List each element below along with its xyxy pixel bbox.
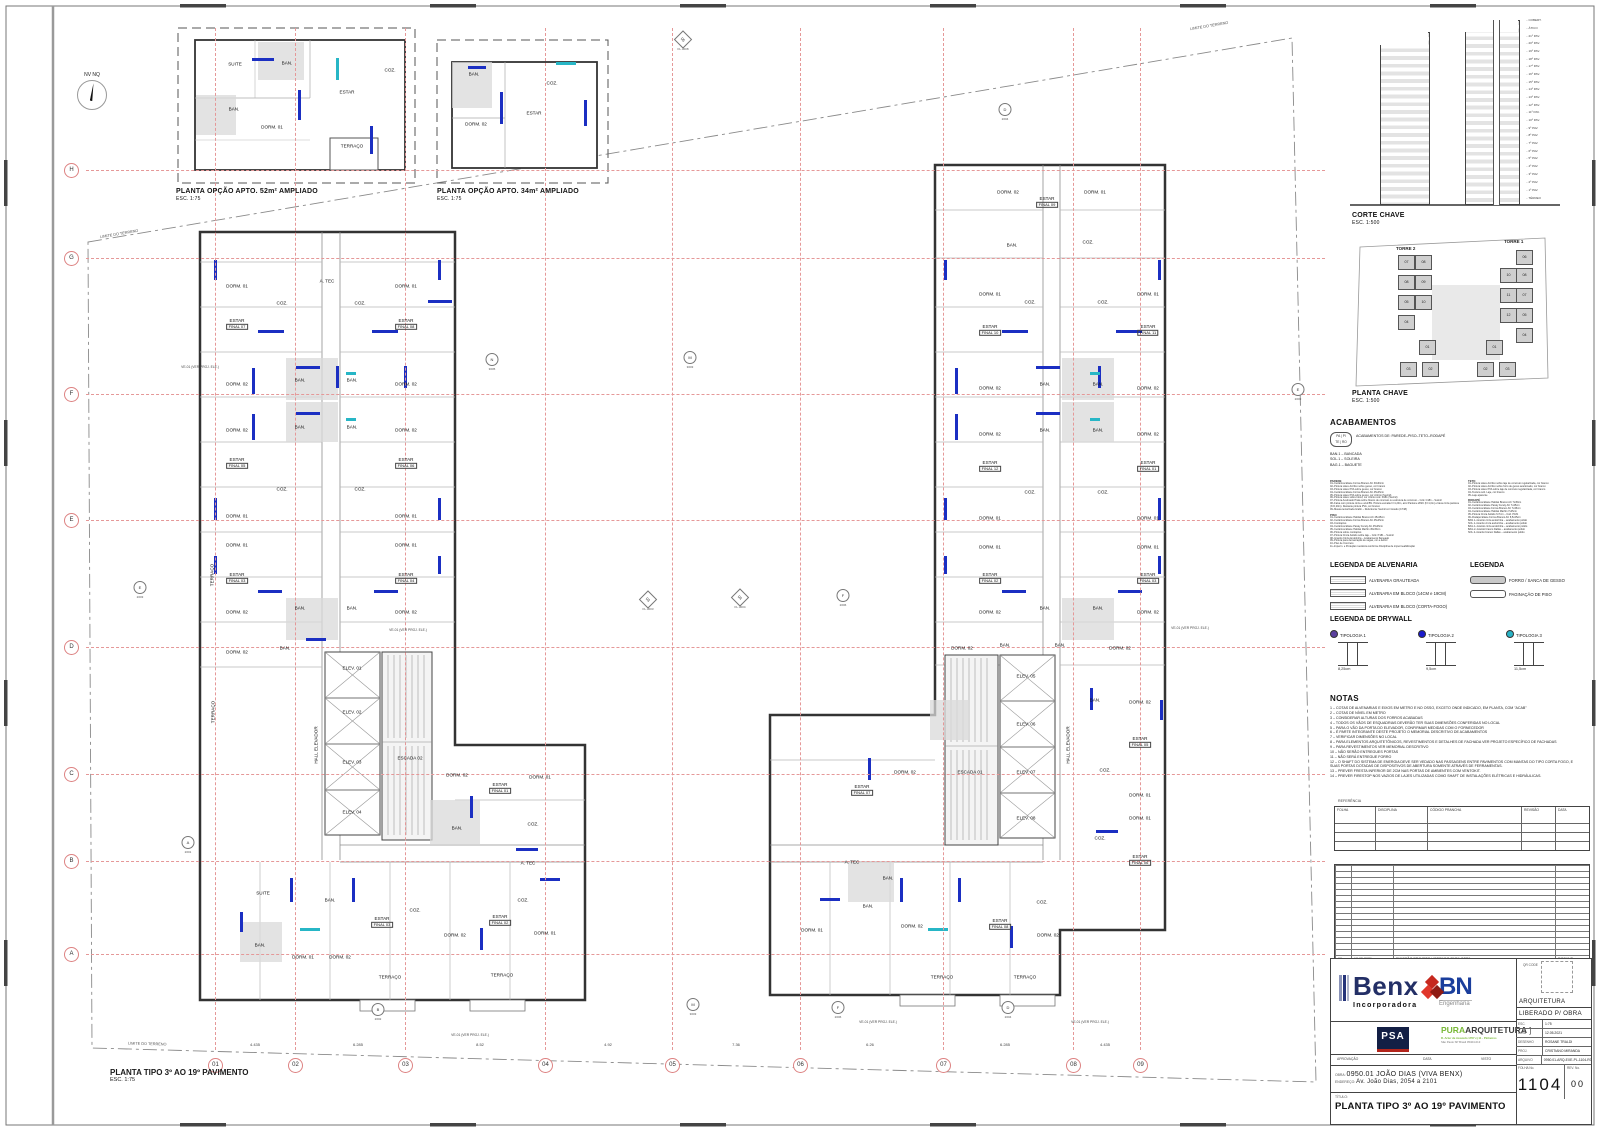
titulo-block: TÍTULO: PLANTA TIPO 3º AO 19º PAVIMENTO: [1335, 1095, 1513, 1112]
ve-annotation: VE-01 (VER PROJ. ELE.): [1171, 626, 1209, 630]
grid-line-v: [295, 28, 296, 1050]
drywall-accent: [1036, 412, 1060, 415]
room-label: DORM. 01: [395, 513, 417, 518]
room-final-tag: FINAL 01: [1137, 466, 1159, 473]
room-label: TERRAÇO: [379, 974, 401, 979]
key-plan-unit: 08: [1516, 268, 1533, 283]
marker-id: E: [134, 581, 147, 594]
room-label: DORM. 01: [395, 283, 417, 288]
room-label: HALL ELEVADOR: [1065, 726, 1070, 763]
room-label: BAN.: [469, 71, 480, 76]
room-label: ESTAR FINAL 06: [1129, 854, 1151, 866]
room-name: COZ.: [1098, 299, 1109, 304]
dimension-text: 4.435: [1100, 1042, 1110, 1047]
room-name: BAN.: [295, 605, 306, 610]
alvenaria-swatch: [1330, 576, 1366, 584]
room-name: COZ.: [1025, 489, 1036, 494]
room-label: ESTAR: [527, 110, 542, 115]
room-label: TERRAÇO: [491, 972, 513, 977]
section-marker: 06 FL.3008: [677, 33, 690, 51]
room-label: BAN.: [325, 897, 336, 902]
key-plan-unit: 10: [1415, 295, 1432, 310]
room-name: DORM. 02: [444, 932, 466, 937]
legenda-drywall-title: LEGENDA DE DRYWALL: [1330, 616, 1412, 623]
room-label: BAN.: [295, 605, 306, 610]
room-label: DORM. 02: [465, 121, 487, 126]
room-label: ELEV. 06: [1017, 721, 1036, 726]
key-plan-unit: 08: [1398, 275, 1415, 290]
drywall-typology: TIPOLOGIA 3 11,5cm: [1506, 630, 1576, 671]
alvenaria-swatch: [1330, 589, 1366, 597]
room-name: ESTAR: [993, 918, 1008, 923]
room-name: COZ.: [355, 300, 366, 305]
grid-bubble-col: 09: [1133, 1058, 1148, 1073]
room-name: COZ.: [277, 300, 288, 305]
marker-sheet-ref: 2004: [1002, 1015, 1015, 1019]
section-marker: N 3005: [486, 353, 499, 371]
info-row: PROJ. CRISTIANO MIRANDA: [1516, 1047, 1591, 1056]
room-label: ELEV. 04: [343, 809, 362, 814]
floor-level-label: 2º PAV.: [1526, 180, 1592, 184]
room-name: ESTAR: [399, 572, 414, 577]
caption-text: PLANTA TIPO 3º AO 19º PAVIMENTO: [110, 1068, 248, 1077]
typology-dimension: 8,25cm: [1338, 667, 1400, 671]
drywall-accent: [1096, 830, 1118, 833]
legend-swatch: [1470, 590, 1506, 598]
room-label: ESCADA 01: [957, 769, 982, 774]
drywall-accent: [346, 418, 356, 421]
key-plan-unit: 04: [1398, 315, 1415, 330]
room-label: DORM. 01: [292, 954, 314, 959]
referencia-empty-row: [1335, 815, 1589, 823]
room-label: DORM. 01: [1084, 189, 1106, 194]
room-name: BAN.: [295, 377, 306, 382]
teto-item: 05–Laje aparente: [1468, 495, 1588, 498]
shade-patch: [1062, 598, 1114, 640]
room-label: BAN.: [1007, 242, 1018, 247]
drywall-accent: [958, 878, 961, 902]
ve-annotation: VE-01 (VER PROJ. ELE.): [1071, 1020, 1109, 1024]
room-label: DORM. 02: [395, 609, 417, 614]
corte-top-cap: [1465, 20, 1518, 32]
revision-empty-row: [1335, 919, 1589, 925]
grid-bubble-row: G: [64, 251, 79, 266]
room-label: DORM. 02: [979, 431, 1001, 436]
drywall-accent: [336, 366, 339, 388]
room-label: TERRAÇO: [931, 974, 953, 979]
key-plan-unit: 11: [1500, 288, 1517, 303]
floor-level-label: ÁTICO: [1526, 26, 1592, 30]
acabamentos-symbol: PA | PI TE | RO: [1330, 432, 1352, 447]
drywall-accent: [300, 928, 320, 931]
room-name: BAN.: [1040, 381, 1051, 386]
room-label: BAN.: [347, 424, 358, 429]
caption-scale: ESC. 1:500: [1352, 220, 1405, 226]
room-label: TERRAÇO: [209, 564, 214, 586]
revision-empty-row: [1335, 901, 1589, 907]
room-name: A. TEC: [320, 278, 335, 283]
room-label: DORM. 01: [261, 124, 283, 129]
drywall-accent: [516, 848, 538, 851]
room-final-tag: FINAL 07: [851, 790, 873, 797]
floor-level-label: 18º PAV.: [1526, 57, 1592, 61]
revision-empty-row: [1335, 949, 1589, 955]
caption-scale: ESC. 1:75: [110, 1077, 248, 1083]
room-name: BAN.: [883, 875, 894, 880]
key-plan-unit: 12: [1500, 308, 1517, 323]
room-name: ESTAR: [1133, 736, 1148, 741]
room-label: ESTAR FINAL 05: [226, 457, 248, 469]
drywall-accent: [470, 796, 473, 818]
room-name: BAN.: [282, 60, 293, 65]
bn-logo: BN Engenharia: [1439, 975, 1472, 1007]
room-final-tag: FINAL 02: [489, 920, 511, 927]
typology-dot-icon: [1330, 630, 1338, 638]
room-name: TERRAÇO: [379, 974, 401, 979]
floor-level-label: 5º PAV.: [1526, 156, 1592, 160]
drywall-accent: [944, 498, 947, 520]
typology-dimension: 11,5cm: [1514, 667, 1576, 671]
floor-level-label: TÉRREO: [1526, 196, 1592, 200]
marker-id: F: [837, 589, 850, 602]
caption-text: PLANTA OPÇÃO APTO. 34m² AMPLIADO: [437, 188, 579, 195]
room-label: TERRAÇO: [210, 701, 215, 723]
room-label: COZ.: [355, 300, 366, 305]
section-marker: M 3003: [684, 351, 697, 369]
legend-label: PAGINAÇÃO DE PISO: [1509, 592, 1552, 597]
room-label: COZ.: [1025, 299, 1036, 304]
room-name: ESTAR: [1133, 854, 1148, 859]
room-name: DORM. 01: [292, 954, 314, 959]
grid-line-v: [672, 28, 673, 1050]
grid-bubble-row: C: [64, 767, 79, 782]
room-label: ESTAR FINAL 08: [989, 918, 1011, 930]
room-label: COZ.: [518, 897, 529, 902]
legend-label: ALVENARIA GRAUTEADA: [1369, 578, 1419, 583]
qr-code-label: QR CODE: [1523, 963, 1538, 967]
room-label: DORM. 01: [979, 544, 1001, 549]
room-name: DORM. 01: [979, 515, 1001, 520]
compass-label: NV NQ: [75, 72, 109, 78]
room-name: DORM. 02: [1137, 385, 1159, 390]
key-plan-unit: 02: [1422, 362, 1439, 377]
room-label: BAN.: [1040, 427, 1051, 432]
room-label: DORM. 02: [395, 427, 417, 432]
room-label: DORM. 01: [529, 774, 551, 779]
room-name: ESCADA 01: [957, 769, 982, 774]
key-plan-unit: 02: [1477, 362, 1494, 377]
room-name: TERRAÇO: [341, 143, 363, 148]
room-label: BAN.: [1093, 381, 1104, 386]
room-final-tag: FINAL 08: [395, 324, 417, 331]
ve-annotation: VE-01 (VER PROJ. ELE.): [451, 1033, 489, 1037]
drywall-accent: [1118, 590, 1142, 593]
drywall-accent: [372, 330, 398, 333]
drywall-section-icon: [1338, 642, 1368, 666]
revision-empty-row: [1335, 913, 1589, 919]
room-name: DORM. 01: [261, 124, 283, 129]
floor-level-label: 8º PAV.: [1526, 133, 1592, 137]
floor-level-label: 7º PAV.: [1526, 141, 1592, 145]
room-name: SUITE: [228, 61, 242, 66]
room-name: DORM. 02: [997, 189, 1019, 194]
nota-item: 11 – NÃO SERÁ ENTREGUE FORRO: [1330, 755, 1582, 759]
room-label: ESTAR FINAL 03: [371, 916, 393, 928]
room-label: ESTAR FINAL 02: [489, 914, 511, 926]
benx-logo: Benx Incorporadora: [1353, 973, 1419, 1009]
room-name: DORM. 01: [529, 774, 551, 779]
floor-level-label: 20º PAV.: [1526, 41, 1592, 45]
room-name: DORM. 01: [801, 927, 823, 932]
revision-empty-row: [1335, 865, 1589, 871]
revision-empty-row: [1335, 931, 1589, 937]
room-label: BAN.: [1093, 427, 1104, 432]
drywall-accent: [500, 92, 503, 124]
marker-sheet-ref: 2003: [134, 595, 147, 599]
room-name: DORM. 01: [979, 291, 1001, 296]
dimension-text: 6.285: [1000, 1042, 1010, 1047]
room-name: BAN.: [1093, 381, 1104, 386]
room-label: DORM. 01: [534, 930, 556, 935]
room-label: ESTAR FINAL 10: [979, 324, 1001, 336]
status-label: LIBERADO P/ OBRA: [1516, 1008, 1591, 1020]
piso-item: 11–Imperm. e Proteção mecânica conforme …: [1330, 546, 1460, 549]
grid-line-v: [545, 28, 546, 1050]
grid-bubble-col: 06: [793, 1058, 808, 1073]
marker-sheet-ref: 2004: [999, 117, 1012, 121]
typology-dot-icon: [1506, 630, 1514, 638]
legend-label: FORRO / SANCA DE GESSO: [1509, 578, 1565, 583]
drywall-accent: [252, 58, 274, 61]
room-final-tag: FINAL 10: [979, 330, 1001, 337]
legend-item: ALVENARIA GRAUTEADA: [1330, 576, 1419, 584]
acabamentos-col-right: TETO 01–Pintura Látex Acrílico sobre laj…: [1468, 478, 1588, 560]
room-name: ESTAR: [1040, 196, 1055, 201]
floor-level-label: 21º PAV.: [1526, 34, 1592, 38]
nota-item: 9 – PARA REVESTIMENTOS VER MEMORIAL DESC…: [1330, 745, 1582, 749]
room-label: DORM. 01: [395, 542, 417, 547]
symbol-line2: TE | RO: [1331, 439, 1351, 445]
legend-swatch: [1470, 576, 1506, 584]
room-label: DORM. 01: [979, 291, 1001, 296]
room-name: ELEV. 05: [1017, 673, 1036, 678]
room-label: ESTAR FINAL 01: [1137, 460, 1159, 472]
room-name: BAN.: [229, 106, 240, 111]
marker-id: N: [486, 353, 499, 366]
info-key: PROJ.: [1516, 1047, 1543, 1055]
room-label: ESTAR: [340, 89, 355, 94]
drywall-accent: [928, 928, 948, 931]
room-name: ESTAR: [375, 916, 390, 921]
room-label: BAN.: [1090, 697, 1101, 702]
room-name: DORM. 02: [979, 609, 1001, 614]
room-label: ELEV. 03: [343, 759, 362, 764]
caption-scale: ESC. 1:75: [437, 196, 579, 202]
nota-item: 14 – PREVER FIRESTOP NOS VAZIOS DE LAJES…: [1330, 774, 1582, 778]
grid-bubble-col: 07: [936, 1058, 951, 1073]
key-plan-unit: 10: [1500, 268, 1517, 283]
room-name: BAN.: [452, 825, 463, 830]
nota-item: 12 – O SHAFT DO SISTEMA DE ENERGIA DEVE …: [1330, 760, 1582, 769]
section-marker: E 2003: [1292, 383, 1305, 401]
room-name: BAN.: [1055, 642, 1066, 647]
tower-1-linework: [770, 165, 1165, 1006]
room-name: ESTAR: [1141, 324, 1156, 329]
nota-item: 4 – TODOS OS VÃOS DE ESQUADRIAS DEVERÃO …: [1330, 721, 1582, 725]
shade-patch: [848, 862, 894, 902]
room-label: COZ.: [277, 486, 288, 491]
room-name: DORM. 02: [226, 427, 248, 432]
corte-top-cap: [1380, 32, 1428, 45]
room-final-tag: FINAL 12: [979, 466, 1001, 473]
drywall-accent: [944, 260, 947, 280]
acabamentos-note: ACABAMENTOS DE: PAREDE–PISO–TETO–RODAPÉ: [1356, 434, 1486, 438]
room-name: TERRAÇO: [1014, 974, 1036, 979]
room-label: COZ.: [1083, 239, 1094, 244]
grid-bubble-col: 08: [1066, 1058, 1081, 1073]
section-marker: D 2004: [999, 103, 1012, 121]
room-name: DORM. 02: [226, 381, 248, 386]
drywall-accent: [540, 878, 560, 881]
room-label: COZ.: [547, 80, 558, 85]
typology-label: TIPOLOGIA 3: [1516, 633, 1542, 638]
caption-scale: ESC. 1:75: [176, 196, 318, 202]
legend-label: ALVENARIA EM BLOCO (14CM e 19CM): [1369, 591, 1446, 596]
nota-item: 8 – PARA ELEMENTOS ARQUITETÔNICOS, REVES…: [1330, 740, 1582, 744]
room-label: DORM. 01: [979, 515, 1001, 520]
key-plan-unit: 03: [1499, 362, 1516, 377]
drywall-accent: [820, 898, 840, 901]
room-label: DORM. 02: [1129, 699, 1151, 704]
room-name: DORM. 01: [1129, 792, 1151, 797]
sheet-number: 1104: [1516, 1075, 1564, 1095]
detail-a-caption: PLANTA OPÇÃO APTO. 52m² AMPLIADO ESC. 1:…: [176, 188, 318, 202]
drywall-accent: [370, 126, 373, 154]
marker-sheet-ref: 3005: [486, 367, 499, 371]
dimension-text: 6.285: [353, 1042, 363, 1047]
north-arrow-icon: [90, 83, 95, 101]
drywall-accent: [584, 100, 587, 126]
room-label: BAN.: [280, 645, 291, 650]
room-label: COZ.: [1025, 489, 1036, 494]
caption-text: PLANTA CHAVE: [1352, 390, 1408, 397]
room-name: ESTAR: [983, 460, 998, 465]
room-name: ESTAR: [493, 782, 508, 787]
room-name: TERRAÇO: [209, 564, 214, 586]
drywall-typology: TIPOLOGIA 2 9,5cm: [1418, 630, 1488, 671]
room-name: COZ.: [1095, 835, 1106, 840]
shade-patch: [196, 95, 236, 135]
room-name: DORM. 02: [395, 609, 417, 614]
floor-level-label: 4º PAV.: [1526, 164, 1592, 168]
key-plan-unit: 04: [1516, 328, 1533, 343]
legend-item: FORRO / SANCA DE GESSO: [1470, 576, 1565, 584]
room-label: SUITE: [256, 890, 270, 895]
revision-empty-row: [1335, 925, 1589, 931]
compass-circle: [77, 80, 107, 110]
benx-subtitle: Incorporadora: [1353, 1000, 1419, 1009]
nota-item: 2 – COTAS DE NÍVEL EM METRO: [1330, 711, 1582, 715]
section-marker: A 2001: [182, 836, 195, 854]
bn-subtitle: Engenharia: [1439, 1000, 1472, 1007]
acabamentos-keys: BAN.1 – BANCADASOL.1 – SOLEIRABAG.1 – BA…: [1330, 452, 1362, 468]
room-name: BAN.: [347, 424, 358, 429]
room-name: ELEV. 03: [343, 759, 362, 764]
drywall-accent: [468, 66, 486, 69]
dimension-text: 4.435: [250, 1042, 260, 1047]
room-label: DORM. 02: [979, 385, 1001, 390]
room-name: COZ.: [547, 80, 558, 85]
grid-bubble-col: 04: [538, 1058, 553, 1073]
room-label: BAN.: [452, 825, 463, 830]
shade-patch: [930, 700, 970, 740]
parede-item: 09–Massa texturizada Grafin – Referência…: [1330, 509, 1460, 512]
room-name: ESTAR: [1141, 460, 1156, 465]
room-name: DORM. 02: [395, 427, 417, 432]
marker-id: M: [684, 351, 697, 364]
room-name: BAN.: [1093, 427, 1104, 432]
referencia-header-row: FOLHA DISCIPLINA CÓDIGO PRANCHA REVISÃO …: [1335, 807, 1589, 815]
drywall-accent: [374, 590, 398, 593]
grid-line-v: [800, 28, 801, 1050]
room-label: ESTAR FINAL 12: [979, 460, 1001, 472]
grid-bubble-row: B: [64, 854, 79, 869]
caption-scale: ESC. 1:500: [1352, 398, 1408, 404]
floor-level-label: 9º PAV.: [1526, 126, 1592, 130]
room-name: COZ.: [1100, 767, 1111, 772]
room-name: ESTAR: [1141, 572, 1156, 577]
room-name: DORM. 01: [979, 544, 1001, 549]
corte-caption: CORTE CHAVE ESC. 1:500: [1352, 212, 1405, 226]
room-name: ELEV. 08: [1017, 815, 1036, 820]
sheet-title: PLANTA TIPO 3º AO 19º PAVIMENTO: [1335, 1101, 1513, 1112]
room-name: ESCADA 02: [397, 755, 422, 760]
shade-patch: [1062, 402, 1114, 442]
room-label: ESTAR FINAL 05: [1129, 736, 1151, 748]
room-name: DORM. 01: [1084, 189, 1106, 194]
titleblock-rule: [1331, 1065, 1516, 1066]
drywall-accent: [240, 912, 243, 932]
revisions-table: 00 12.05.2021 EMISSÃO PROJETO LIBERADO P…: [1334, 864, 1590, 972]
dimension-text: 4.92: [604, 1042, 612, 1047]
floor-level-label: COBERT.: [1526, 18, 1592, 22]
grid-bubble-row: H: [64, 163, 79, 178]
shade-patch: [286, 598, 338, 640]
room-name: BAN.: [863, 903, 874, 908]
section-marker: B 2002: [372, 1003, 385, 1021]
revision-empty-row: [1335, 871, 1589, 877]
caption-text: CORTE CHAVE: [1352, 212, 1405, 219]
acabamento-key: SOL.1 – SOLEIRA: [1330, 457, 1362, 462]
room-label: DORM. 01: [226, 513, 248, 518]
room-name: ESTAR: [855, 784, 870, 789]
drywall-accent: [296, 412, 320, 415]
room-label: ELEV. 08: [1017, 815, 1036, 820]
room-name: ESTAR: [399, 457, 414, 462]
nota-item: 13 – PREVER FRESTA INFERIOR DE 2CM NAS P…: [1330, 769, 1582, 773]
room-label: COZ.: [528, 821, 539, 826]
caption-text: PLANTA OPÇÃO APTO. 52m² AMPLIADO: [176, 188, 318, 195]
notas-list: 1 – COTAS DE ALVENARIAS E EIXOS EM METRO…: [1330, 706, 1582, 779]
room-label: ELEV. 02: [343, 709, 362, 714]
drywall-accent: [900, 878, 903, 902]
info-value: 1:75: [1543, 1022, 1552, 1026]
key-plan-unit: 01: [1419, 340, 1436, 355]
room-name: HALL ELEVADOR: [1065, 726, 1070, 763]
room-name: ELEV. 07: [1017, 769, 1036, 774]
room-name: DORM. 01: [226, 283, 248, 288]
room-label: ESTAR FINAL 09: [1036, 196, 1058, 208]
